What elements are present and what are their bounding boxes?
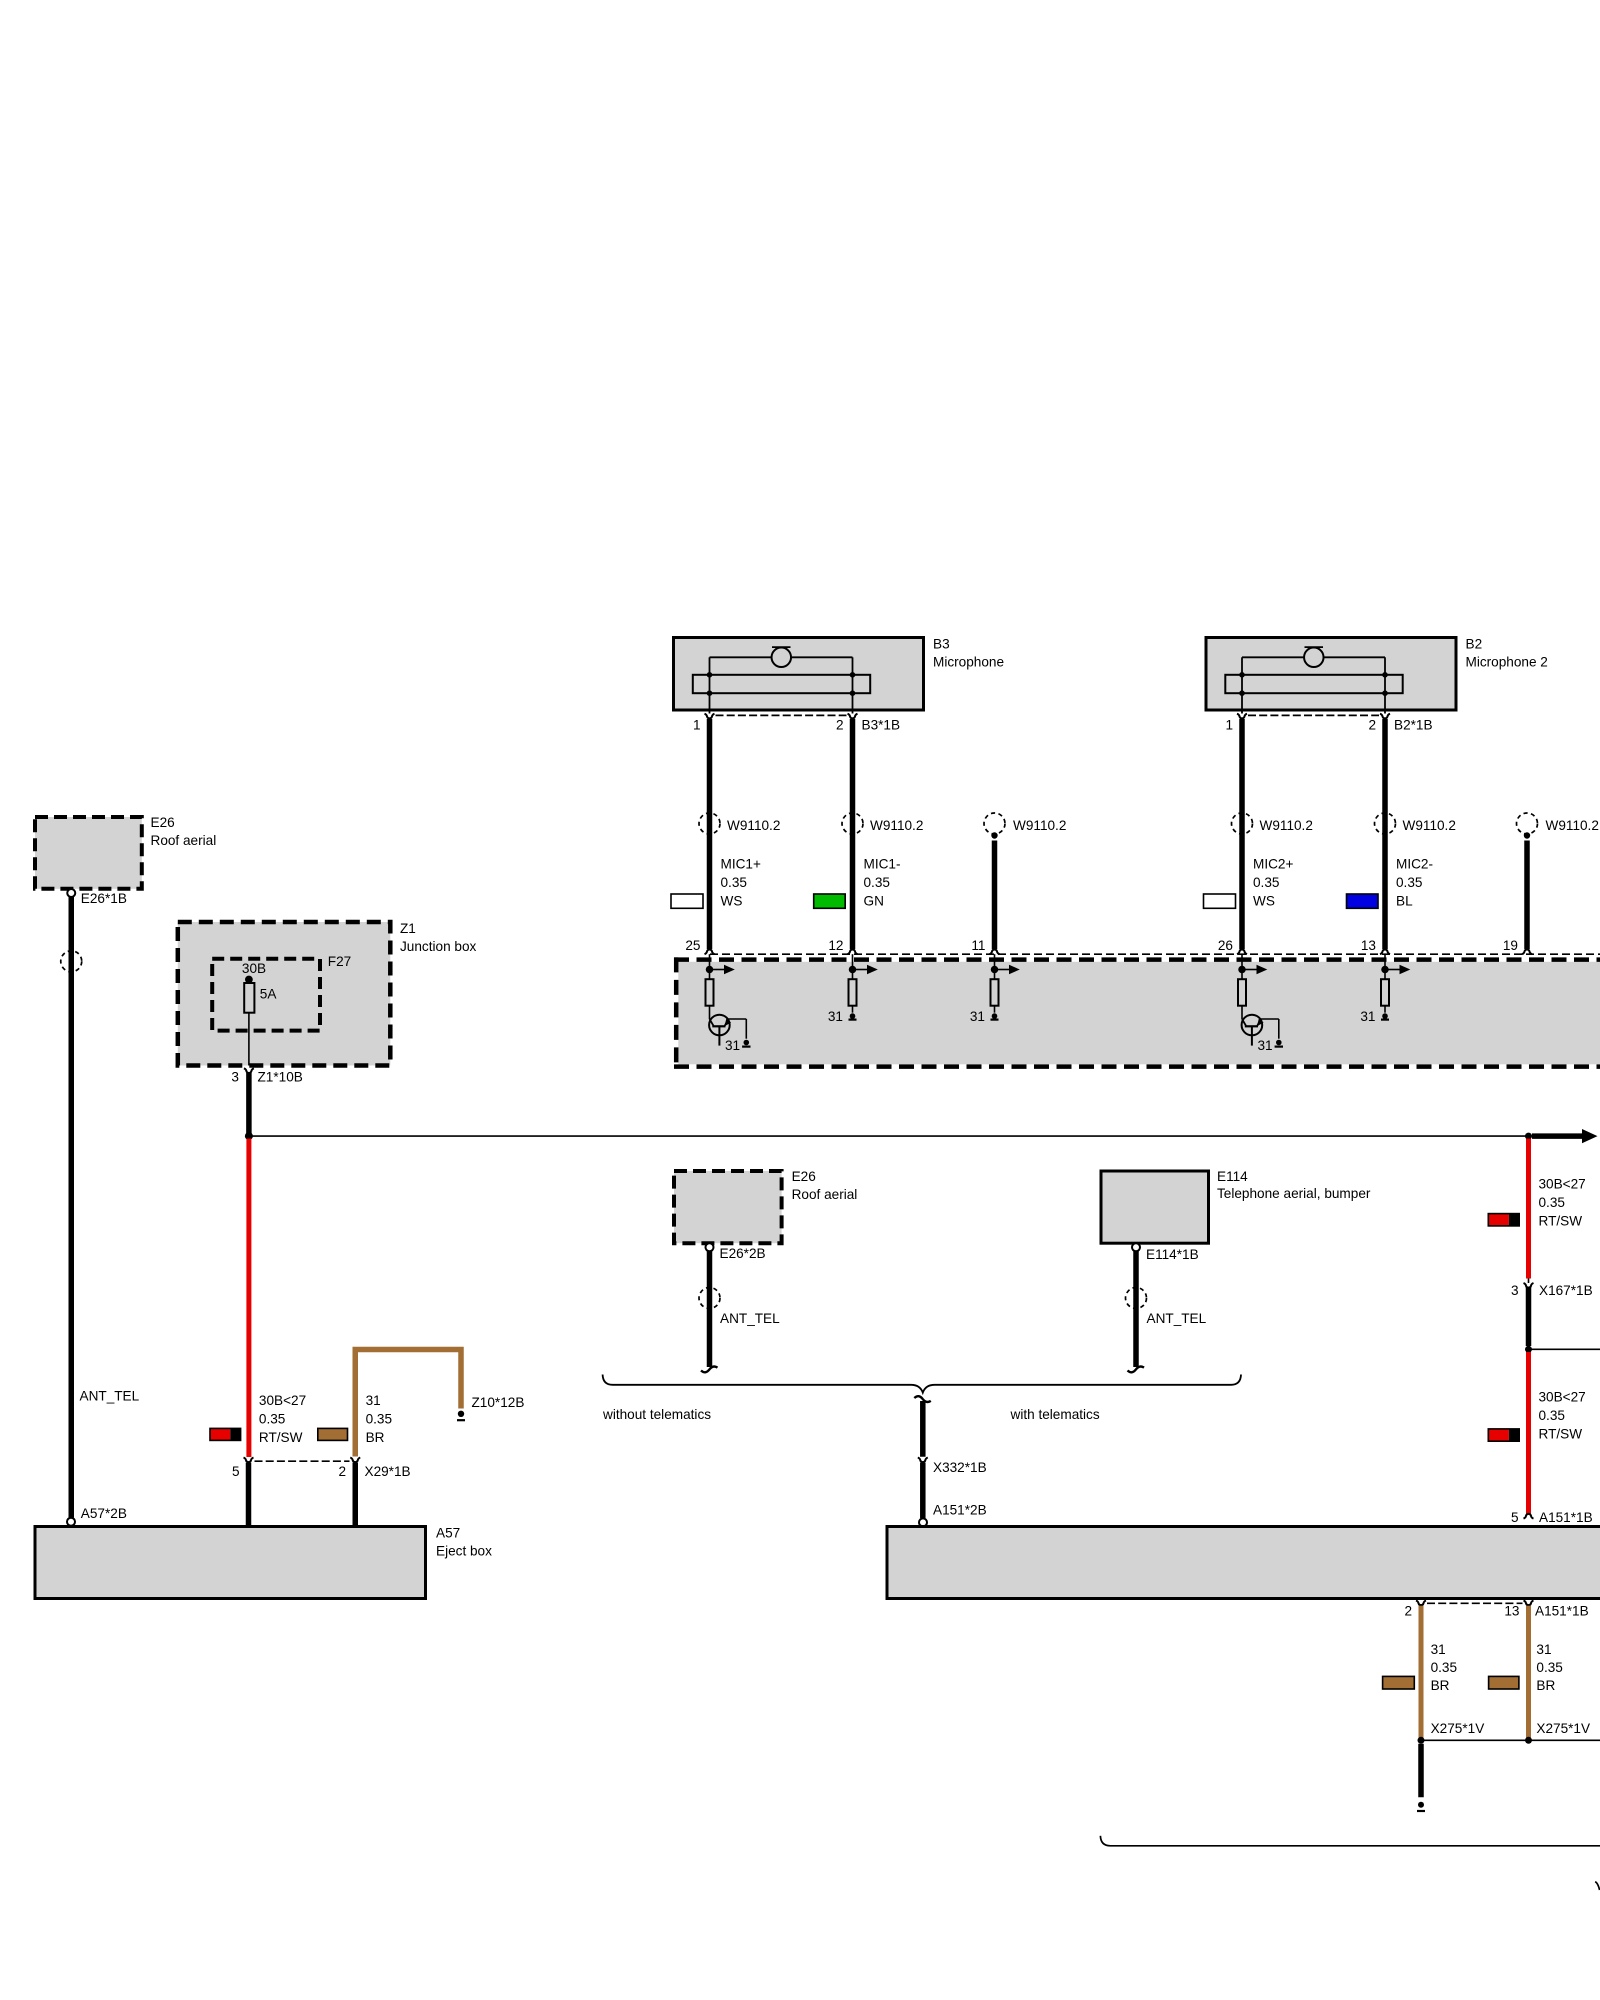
- svg-text:13: 13: [1504, 1604, 1519, 1619]
- svg-text:X275*1V: X275*1V: [1536, 1721, 1590, 1736]
- svg-text:MIC1-: MIC1-: [864, 857, 901, 872]
- svg-text:Z10*12B: Z10*12B: [472, 1395, 525, 1410]
- svg-text:GN: GN: [864, 894, 884, 909]
- svg-text:0.35: 0.35: [721, 875, 747, 890]
- svg-text:E26: E26: [151, 815, 175, 830]
- svg-text:RT/SW: RT/SW: [1539, 1214, 1583, 1229]
- svg-text:BR: BR: [366, 1430, 385, 1445]
- svg-text:X332*1B: X332*1B: [933, 1460, 987, 1475]
- svg-text:1: 1: [693, 718, 701, 733]
- svg-text:0.35: 0.35: [1253, 875, 1279, 890]
- svg-text:F27: F27: [328, 954, 351, 969]
- svg-text:5A: 5A: [260, 987, 278, 1002]
- svg-text:0.35: 0.35: [1536, 1660, 1562, 1675]
- svg-text:ANT_TEL: ANT_TEL: [1147, 1311, 1207, 1326]
- svg-text:A57*2B: A57*2B: [81, 1506, 127, 1521]
- svg-text:2: 2: [836, 718, 844, 733]
- svg-text:with telematics: with telematics: [1010, 1407, 1100, 1422]
- svg-text:WS: WS: [1253, 894, 1275, 909]
- svg-text:26: 26: [1218, 938, 1233, 953]
- svg-text:31: 31: [366, 1393, 381, 1408]
- svg-text:RT/SW: RT/SW: [259, 1430, 303, 1445]
- svg-text:0.35: 0.35: [1396, 875, 1422, 890]
- svg-text:Telephone aerial, bumper: Telephone aerial, bumper: [1217, 1186, 1371, 1201]
- svg-text:X275*1V: X275*1V: [1431, 1721, 1485, 1736]
- svg-text:MIC1+: MIC1+: [721, 857, 761, 872]
- svg-text:BR: BR: [1536, 1678, 1555, 1693]
- svg-text:MIC2-: MIC2-: [1396, 857, 1433, 872]
- svg-text:W9110.2: W9110.2: [1403, 818, 1456, 833]
- svg-text:E114: E114: [1217, 1169, 1248, 1184]
- svg-text:25: 25: [685, 938, 700, 953]
- svg-text:3: 3: [1511, 1283, 1519, 1298]
- svg-text:B3*1B: B3*1B: [862, 718, 901, 733]
- svg-text:X167*1B: X167*1B: [1539, 1283, 1593, 1298]
- svg-text:A57: A57: [436, 1526, 460, 1541]
- svg-text:11: 11: [971, 938, 985, 953]
- svg-text:Z1*10B: Z1*10B: [258, 1070, 303, 1085]
- svg-text:E26*2B: E26*2B: [720, 1246, 766, 1261]
- svg-text:W9110.2: W9110.2: [1013, 818, 1066, 833]
- svg-text:E26: E26: [792, 1169, 816, 1184]
- svg-text:30B<27: 30B<27: [1539, 1390, 1586, 1405]
- svg-text:2: 2: [338, 1464, 346, 1479]
- svg-text:B3: B3: [933, 637, 950, 652]
- svg-text:0.35: 0.35: [1431, 1660, 1457, 1675]
- svg-text:Microphone: Microphone: [933, 655, 1004, 670]
- svg-text:0.35: 0.35: [259, 1412, 285, 1427]
- svg-text:5: 5: [232, 1464, 240, 1479]
- svg-text:30B<27: 30B<27: [1539, 1177, 1586, 1192]
- svg-text:5: 5: [1511, 1510, 1519, 1525]
- svg-text:12: 12: [828, 938, 843, 953]
- svg-text:B2*1B: B2*1B: [1394, 718, 1433, 733]
- svg-text:W9110.2: W9110.2: [727, 818, 780, 833]
- svg-text:W9110.2: W9110.2: [1546, 818, 1599, 833]
- svg-text:WS: WS: [721, 894, 743, 909]
- svg-text:E114*1B: E114*1B: [1146, 1247, 1199, 1262]
- svg-text:1: 1: [1225, 718, 1233, 733]
- svg-text:BL: BL: [1396, 894, 1413, 909]
- svg-text:Z1: Z1: [400, 921, 416, 936]
- svg-text:without telematics: without telematics: [602, 1407, 711, 1422]
- svg-text:0.35: 0.35: [1539, 1408, 1565, 1423]
- svg-text:0.35: 0.35: [864, 875, 890, 890]
- svg-text:MIC2+: MIC2+: [1253, 857, 1293, 872]
- svg-text:ANT_TEL: ANT_TEL: [80, 1389, 140, 1404]
- svg-text:0.35: 0.35: [366, 1412, 392, 1427]
- svg-text:Junction box: Junction box: [400, 939, 477, 954]
- svg-text:W9110.2: W9110.2: [1260, 818, 1313, 833]
- svg-text:W9110.2: W9110.2: [870, 818, 923, 833]
- svg-text:Eject box: Eject box: [436, 1544, 492, 1559]
- svg-text:B2: B2: [1466, 637, 1483, 652]
- svg-text:X29*1B: X29*1B: [365, 1464, 411, 1479]
- svg-text:3: 3: [231, 1070, 239, 1085]
- svg-text:Roof aerial: Roof aerial: [151, 833, 217, 848]
- svg-text:30B<27: 30B<27: [259, 1393, 306, 1408]
- svg-text:E26*1B: E26*1B: [81, 891, 127, 906]
- svg-text:2: 2: [1404, 1604, 1412, 1619]
- svg-text:Roof aerial: Roof aerial: [792, 1187, 858, 1202]
- svg-text:30B: 30B: [242, 961, 266, 976]
- svg-text:13: 13: [1361, 938, 1376, 953]
- svg-text:31: 31: [1431, 1642, 1446, 1657]
- svg-text:RT/SW: RT/SW: [1539, 1427, 1583, 1442]
- svg-text:A151*2B: A151*2B: [933, 1503, 987, 1518]
- svg-text:A151*1B: A151*1B: [1539, 1510, 1593, 1525]
- svg-text:ANT_TEL: ANT_TEL: [720, 1311, 780, 1326]
- svg-text:2: 2: [1368, 718, 1376, 733]
- svg-text:Microphone 2: Microphone 2: [1466, 655, 1548, 670]
- svg-text:BR: BR: [1431, 1678, 1450, 1693]
- svg-text:19: 19: [1503, 938, 1518, 953]
- svg-text:0.35: 0.35: [1539, 1195, 1565, 1210]
- svg-text:A151*1B: A151*1B: [1535, 1604, 1589, 1619]
- svg-text:31: 31: [1536, 1642, 1551, 1657]
